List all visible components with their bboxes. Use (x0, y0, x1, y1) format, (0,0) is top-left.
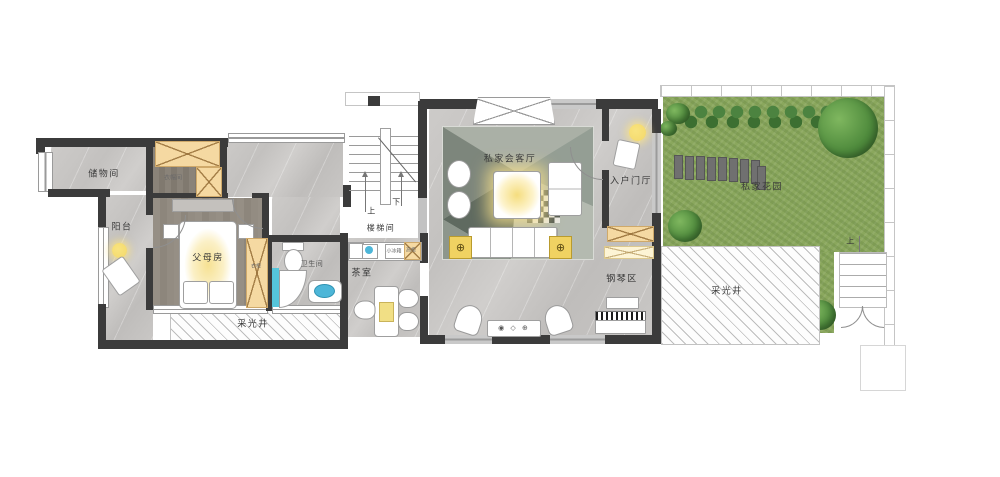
corridor-floor (222, 140, 343, 197)
wall-balcony-left-top (98, 189, 106, 229)
stair-stringer (380, 128, 391, 205)
piano-bench (606, 297, 639, 309)
closet-cabinet-top (155, 141, 220, 167)
stair-top-landing (345, 92, 420, 106)
stair-up-label: 上 (367, 206, 377, 217)
wall-foyer-right-a (652, 109, 661, 133)
wardrobe-cabinet (246, 238, 268, 308)
bedroom-label: 父母房 (192, 251, 224, 264)
wall-living-bottom-1 (420, 335, 445, 344)
stepping-stone (718, 157, 727, 181)
garden-up-label: 上 (846, 236, 856, 247)
floor-plan: 私家花园 上 采光井 采光井 储物间 阳台 (0, 0, 1000, 477)
tea-chair-left (354, 301, 376, 320)
bathroom-label: 卫生间 (301, 259, 324, 269)
piano-body (595, 320, 646, 334)
wall-living-bottom-3 (605, 335, 661, 344)
living-room-label: 私家会客厅 (484, 152, 537, 165)
lamp-symbol-icon: ⊕ (556, 241, 565, 254)
closet-cabinet-side (196, 167, 222, 197)
piano-area-label: 钢琴区 (606, 272, 638, 285)
foyer-lamp (629, 124, 646, 141)
wall-bedroom-right (262, 193, 269, 238)
wall-bedroom-left-top (146, 193, 153, 215)
stairwell-label: 楼梯间 (367, 223, 396, 234)
lamp-symbol-icon: ⊕ (456, 241, 465, 254)
stair-arrow-1 (365, 176, 366, 212)
window-storage-left (38, 152, 53, 192)
foyer-label: 入户门厅 (610, 174, 652, 187)
balcony-stool (112, 243, 127, 258)
lightwell-right-label: 采光井 (711, 284, 743, 297)
living-chair-round-2 (447, 191, 471, 219)
wall-piano-right (652, 245, 661, 344)
stepping-stone (685, 156, 694, 180)
wall-foyer-left-b (602, 170, 609, 228)
window-corridor-top (228, 133, 345, 143)
wall-closet-left (146, 140, 153, 193)
coffee-table (493, 171, 541, 219)
wall-bedroom-left-bottom (146, 248, 153, 310)
bedroom-dresser (172, 199, 234, 212)
shower-strip (272, 268, 279, 307)
stepping-stone (696, 156, 705, 180)
wall-foyer-left-a (602, 109, 609, 141)
tea-chair-right-2 (398, 312, 419, 331)
wall-bath-top (270, 235, 348, 242)
tea-chair-right-1 (398, 289, 419, 308)
window-living-top (550, 99, 596, 109)
stair-arrowhead-1 (362, 171, 368, 177)
stair-down-label: 下 (392, 197, 402, 208)
entry-door-arc-left (841, 306, 863, 328)
stair-arrowhead-2 (398, 171, 404, 177)
wall-bottom-left (98, 340, 348, 349)
sofa-bottom (468, 227, 558, 258)
stepping-stone (729, 158, 738, 182)
garden-bush-topleft-2 (660, 121, 677, 136)
tea-tall-cabinet-label: 高柜 (406, 247, 416, 254)
garden-label: 私家花园 (741, 180, 783, 193)
tea-sink-basin (365, 246, 373, 254)
storage-label: 储物间 (88, 167, 120, 180)
wall-stair-right (418, 101, 427, 198)
exterior-landing (860, 345, 906, 391)
living-chair-round-1 (447, 160, 471, 188)
wardrobe-label: 衣柜 (251, 263, 261, 270)
garden-hedge-row (676, 104, 834, 132)
media-glyphs-icon: ◉ ◇ ⊕ (498, 324, 530, 332)
cloakroom-label: 衣帽间 (164, 173, 182, 182)
living-console-table (473, 97, 555, 125)
pillow-left (183, 281, 208, 304)
media-console: ◉ ◇ ⊕ (487, 320, 541, 337)
tea-room-label: 茶室 (351, 266, 372, 279)
stepping-stone (707, 157, 716, 181)
window-living-bottom-1 (445, 335, 492, 344)
side-table-right: ⊕ (549, 236, 572, 259)
stepping-stone (674, 155, 683, 179)
balcony-label: 阳台 (111, 220, 132, 233)
foyer-shoe-cabinet-2 (604, 246, 654, 259)
side-table-left: ⊕ (449, 236, 472, 259)
tea-fridge-label: 小冰箱 (386, 248, 401, 255)
pillow-right (209, 281, 234, 304)
window-foyer-right (652, 133, 661, 213)
tea-set (379, 302, 394, 322)
wall-foyer-top (596, 99, 658, 109)
sofa-right (548, 162, 582, 216)
wall-stair-top-stub (368, 96, 380, 106)
exterior-stair (839, 252, 887, 308)
garden-tree-left (668, 210, 702, 242)
garden-tree-large (818, 98, 878, 158)
window-living-bottom-2 (550, 335, 605, 344)
bath-sink-basin (314, 284, 335, 298)
garden-top-fence (660, 85, 895, 97)
entry-door-arc-right (862, 306, 884, 328)
lightwell-left-label: 采光井 (237, 317, 269, 330)
foyer-shoe-cabinet-1 (607, 226, 654, 242)
